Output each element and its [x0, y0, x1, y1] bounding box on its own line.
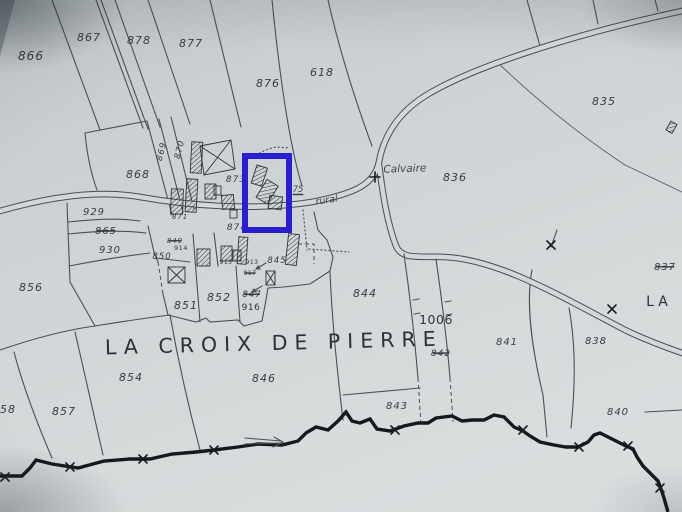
- map-label: 857: [52, 405, 76, 418]
- map-label: 852: [207, 291, 231, 304]
- map-label: 75: [293, 185, 304, 195]
- map-label: 837: [654, 262, 676, 273]
- map-label: 877: [179, 37, 203, 50]
- map-label: 869: [155, 141, 169, 162]
- map-label: 930: [99, 245, 121, 256]
- boundary-cross-marks: [1, 241, 664, 492]
- map-label: 866: [18, 49, 44, 63]
- map-label: 867: [77, 31, 101, 44]
- map-label: 878: [127, 34, 151, 47]
- map-label: 854: [119, 371, 143, 384]
- map-label: 843: [386, 401, 408, 412]
- map-label: 840: [607, 407, 629, 418]
- map-label: 915: [220, 259, 233, 266]
- map-label: 871: [172, 213, 188, 221]
- map-label: 1006: [419, 312, 453, 327]
- map-label: 850: [152, 252, 171, 262]
- map-label: 838: [585, 336, 607, 347]
- map-label: 835: [592, 95, 616, 108]
- map-label: 58: [0, 403, 16, 416]
- map-label: 618: [310, 66, 334, 79]
- map-label: 851: [174, 299, 198, 312]
- map-label: 876: [256, 77, 280, 90]
- map-label: 868: [126, 168, 150, 181]
- cadastral-map-canvas: 8668678788778766188358688698708738718749…: [0, 0, 682, 512]
- map-label: LA CROIX DE PIERRE: [105, 327, 443, 360]
- map-label: 844: [353, 287, 377, 300]
- map-label: 929: [83, 207, 105, 218]
- cadastral-map: 8668678788778766188358688698708738718749…: [0, 0, 682, 512]
- map-label: 847: [242, 290, 261, 300]
- map-label: 913: [246, 259, 259, 266]
- roads: [0, 11, 682, 425]
- map-label: rural: [315, 193, 339, 207]
- map-label: 841: [496, 337, 518, 348]
- map-label: 836: [443, 171, 467, 184]
- photo-corner-shadow: [0, 0, 15, 56]
- map-label: 846: [252, 372, 276, 385]
- map-label: LA: [646, 294, 672, 310]
- map-label: Calvaire: [383, 162, 426, 175]
- map-label: 845: [267, 256, 286, 266]
- map-label: 916: [242, 303, 261, 313]
- map-label: 870: [173, 139, 187, 160]
- map-label: 914: [174, 244, 188, 252]
- map-label: 856: [19, 281, 43, 294]
- stream-boundary: [0, 412, 668, 512]
